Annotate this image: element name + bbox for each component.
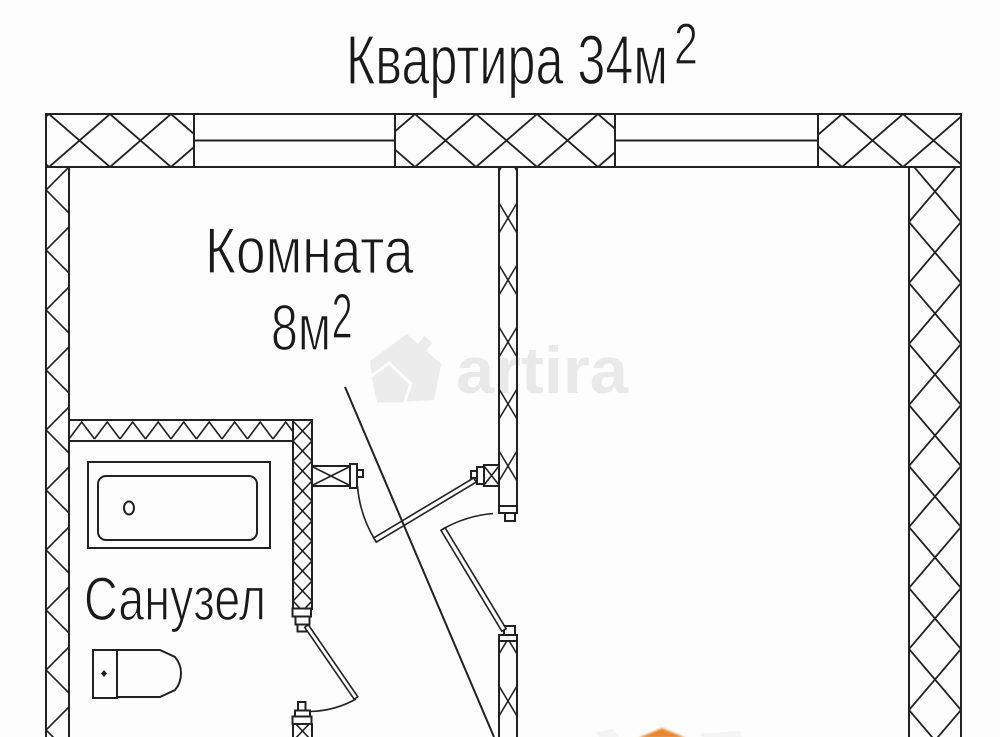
svg-text:8м: 8м <box>271 291 331 364</box>
svg-text:artira: artira <box>456 333 629 407</box>
svg-text:Комната: Комната <box>205 214 414 287</box>
svg-text:Санузел: Санузел <box>84 565 266 633</box>
svg-text:2: 2 <box>674 12 698 77</box>
svg-text:2: 2 <box>332 280 353 352</box>
svg-text:Квартира 34м: Квартира 34м <box>346 21 668 99</box>
